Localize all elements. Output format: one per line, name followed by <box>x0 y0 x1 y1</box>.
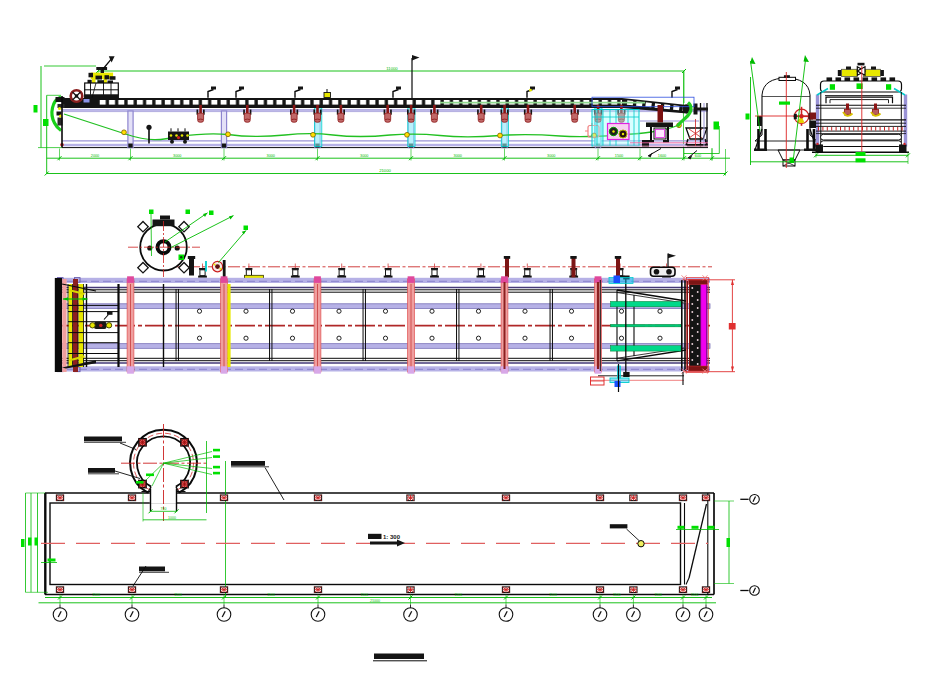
svg-text:1500: 1500 <box>613 593 621 597</box>
svg-text:1: 300: 1: 300 <box>383 534 401 540</box>
svg-text:1500: 1500 <box>267 593 275 597</box>
svg-text:1500: 1500 <box>549 593 557 597</box>
svg-text:1500: 1500 <box>454 593 462 597</box>
svg-text:21000: 21000 <box>379 168 391 173</box>
svg-text:1000: 1000 <box>168 516 176 520</box>
svg-text:3000: 3000 <box>360 154 368 158</box>
svg-text:3000: 3000 <box>547 154 555 158</box>
svg-text:3000: 3000 <box>173 154 181 158</box>
svg-text:21000: 21000 <box>370 599 380 603</box>
svg-text:700: 700 <box>161 507 167 511</box>
svg-text:600: 600 <box>695 154 701 158</box>
svg-text:1500: 1500 <box>691 593 699 597</box>
svg-text:3000: 3000 <box>454 154 462 158</box>
svg-text:1500: 1500 <box>615 154 623 158</box>
svg-text:1500: 1500 <box>360 593 368 597</box>
svg-text:1500: 1500 <box>174 593 182 597</box>
svg-text:1500: 1500 <box>654 593 662 597</box>
svg-text:3000: 3000 <box>267 154 275 158</box>
svg-text:2000: 2000 <box>91 154 99 158</box>
svg-text:11000: 11000 <box>386 66 398 71</box>
svg-text:1600: 1600 <box>658 154 666 158</box>
svg-text:1500: 1500 <box>92 593 100 597</box>
